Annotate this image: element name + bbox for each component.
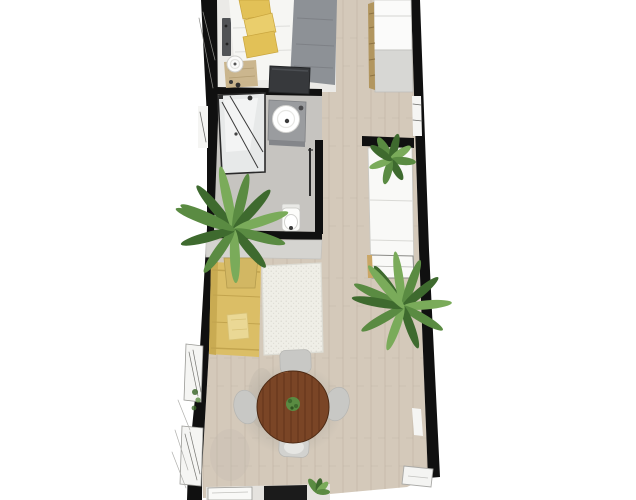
- side-table-decor: [225, 25, 228, 28]
- bottom-cabinet: [208, 487, 252, 500]
- entry-step: [402, 466, 433, 487]
- storage-baskets: [368, 2, 375, 90]
- wardrobe: [368, 0, 413, 92]
- side-table-decor: [226, 43, 229, 46]
- shower-drain: [234, 132, 237, 135]
- toilet-seat-shadow: [289, 226, 293, 230]
- washbasin-vanity: [268, 100, 306, 147]
- kitchen-counter-right: [367, 133, 416, 278]
- shower: [218, 93, 265, 174]
- bathroom-side-wall: [315, 140, 323, 234]
- dining-chair-top: [280, 349, 312, 373]
- washbasin-drain: [285, 119, 289, 123]
- nightstand: [224, 56, 258, 88]
- area-rug: [262, 263, 323, 355]
- side-table: [222, 18, 231, 56]
- floor-shading: [210, 429, 250, 481]
- bedroom: [222, 0, 337, 94]
- toilet: [282, 204, 300, 231]
- shower-head: [248, 96, 253, 101]
- floor-plan-svg: [0, 0, 636, 500]
- soap-dispenser: [299, 106, 304, 111]
- table-centerpiece-plant: [286, 397, 300, 411]
- rug-texture: [262, 263, 323, 355]
- wardrobe-gray-section: [374, 50, 413, 92]
- wardrobe-white-section: [374, 0, 412, 50]
- lamp-finial: [234, 63, 237, 66]
- sofa-throw-blanket: [227, 313, 249, 340]
- decor-item: [229, 80, 233, 84]
- plant-pot: [224, 258, 258, 288]
- washbasin: [273, 106, 300, 133]
- floor-plan-image: [0, 0, 636, 500]
- decor-item: [236, 83, 241, 88]
- right-wall-window-1: [412, 96, 422, 136]
- shower-valve: [219, 95, 223, 99]
- cooktop: [264, 485, 307, 500]
